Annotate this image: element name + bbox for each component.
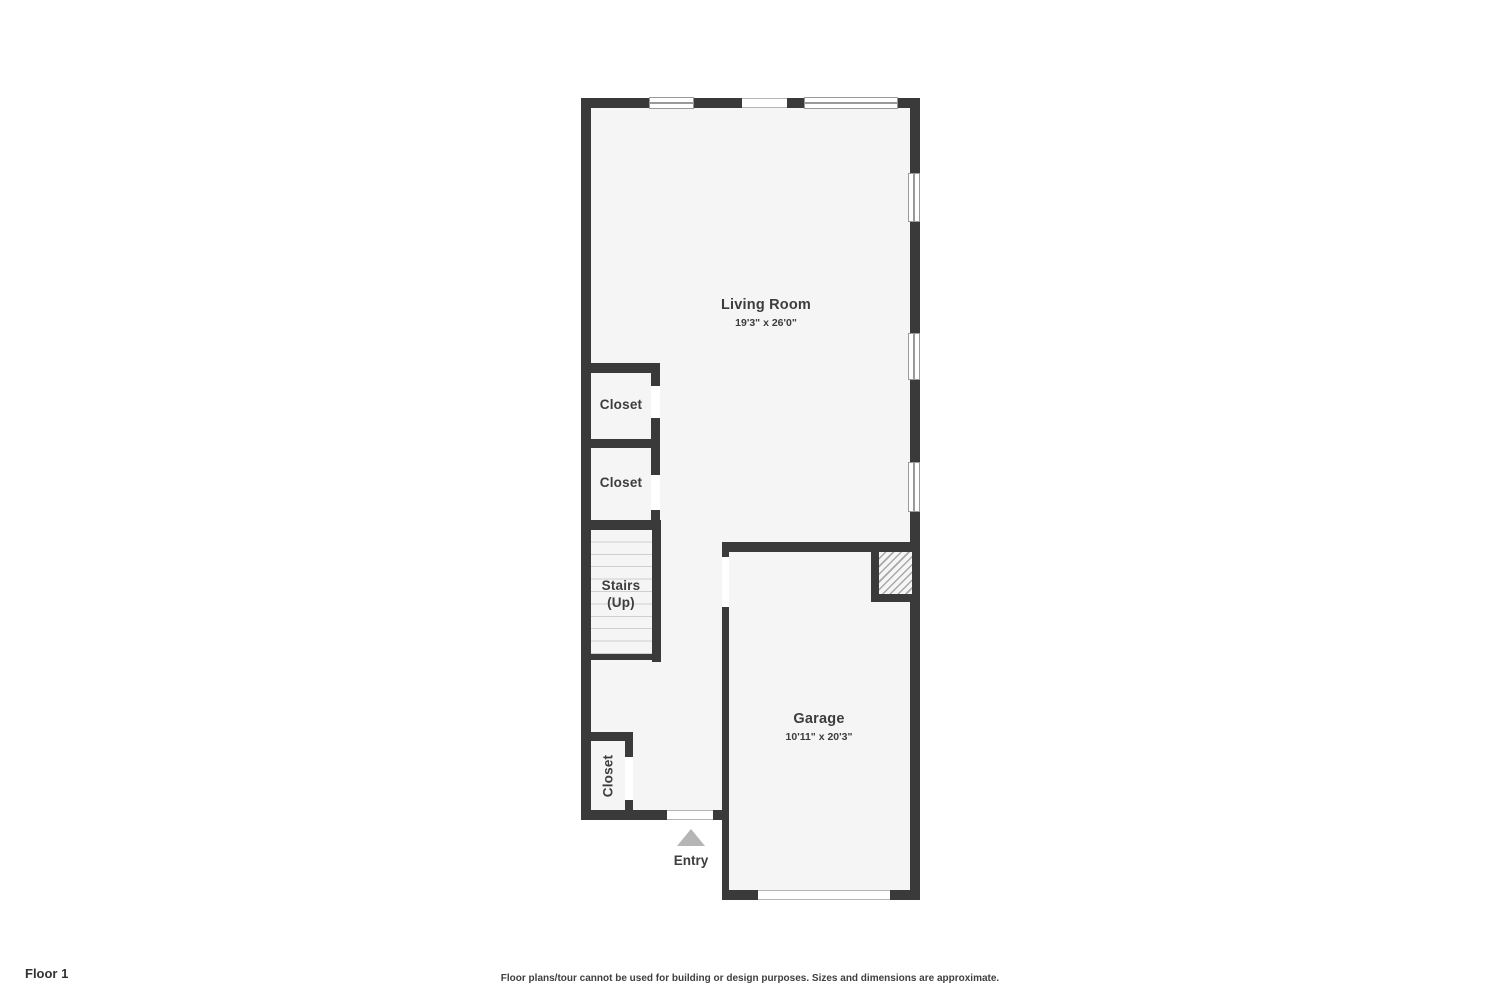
garage-label: Garage 10'11" x 20'3" bbox=[719, 711, 919, 743]
wall-utility-bottom bbox=[871, 594, 914, 602]
wall-garage-top bbox=[722, 542, 914, 552]
garage-dimensions: 10'11" x 20'3" bbox=[719, 731, 919, 743]
floor-plan: Living Room 19'3" x 26'0" Closet Closet … bbox=[0, 0, 1500, 1000]
wall-garage-bottom-left bbox=[722, 890, 758, 900]
wall-bottom-left-segment bbox=[581, 810, 667, 820]
window-top-2 bbox=[804, 97, 898, 109]
window-right-3 bbox=[908, 462, 920, 512]
closet-mid-label: Closet bbox=[571, 475, 671, 490]
garage-side-door-opening bbox=[722, 557, 729, 607]
window-top-1 bbox=[649, 97, 694, 109]
disclaimer-text: Floor plans/tour cannot be used for buil… bbox=[0, 973, 1500, 984]
closet-top-label: Closet bbox=[571, 397, 671, 412]
stairs-direction: (Up) bbox=[571, 595, 671, 612]
utility-hatch-area bbox=[879, 552, 912, 594]
entry-door-opening bbox=[667, 810, 713, 820]
wall-closet-divider bbox=[581, 439, 660, 448]
entry-label: Entry bbox=[641, 853, 741, 868]
living-room-name: Living Room bbox=[666, 297, 866, 314]
top-wall-opening bbox=[742, 98, 787, 108]
window-right-1 bbox=[908, 173, 920, 222]
stairs-label: Stairs (Up) bbox=[571, 578, 671, 611]
entry-arrow-icon bbox=[677, 829, 705, 846]
wall-stairs-top bbox=[581, 520, 660, 530]
entry-closet-label: Closet bbox=[601, 755, 616, 797]
living-room-label: Living Room 19'3" x 26'0" bbox=[666, 297, 866, 329]
wall-left bbox=[581, 98, 591, 820]
living-room-dimensions: 19'3" x 26'0" bbox=[666, 317, 866, 329]
wall-closet-top bbox=[581, 363, 660, 373]
garage-door-opening bbox=[758, 890, 890, 900]
stairs-bottom-edge bbox=[586, 654, 661, 660]
wall-garage-bottom-right bbox=[890, 890, 920, 900]
garage-name: Garage bbox=[719, 711, 919, 728]
window-right-2 bbox=[908, 333, 920, 380]
entry-closet-door-opening bbox=[625, 757, 633, 800]
stairs-name: Stairs bbox=[571, 578, 671, 595]
